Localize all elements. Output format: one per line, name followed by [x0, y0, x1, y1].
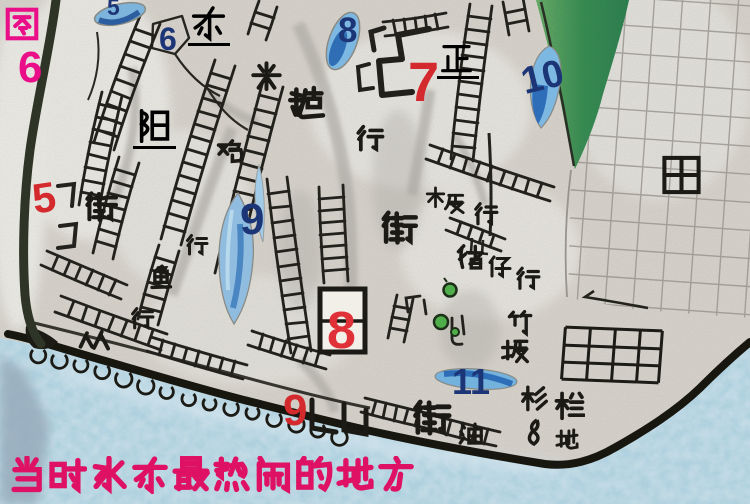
svg-text:6: 6	[159, 21, 177, 57]
svg-text:9: 9	[240, 195, 264, 244]
svg-text:9: 9	[283, 386, 307, 435]
svg-text:8: 8	[327, 302, 356, 360]
svg-text:8: 8	[338, 11, 357, 50]
svg-text:7: 7	[408, 50, 439, 113]
svg-text:6: 6	[18, 43, 42, 92]
svg-text:5: 5	[107, 0, 120, 20]
svg-text:11: 11	[452, 361, 490, 402]
